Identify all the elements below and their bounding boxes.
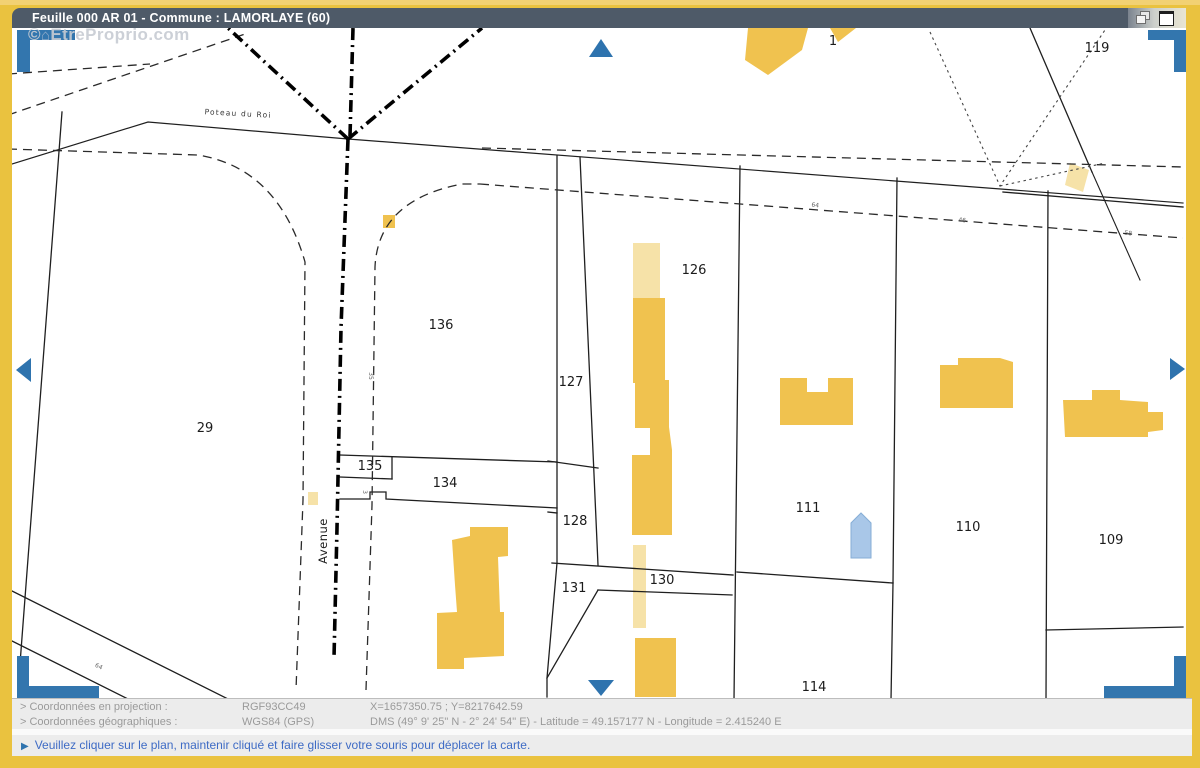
- parcel-label-109: 109: [1099, 533, 1124, 548]
- coordinates-statusbar: > Coordonnées en projection : RGF93CC49 …: [12, 698, 1192, 729]
- frame-right-strip: [1186, 8, 1192, 698]
- parcel-label-110: 110: [956, 520, 981, 535]
- parcel-row-top-line: [1003, 192, 1183, 207]
- pool-111: [851, 513, 871, 558]
- northeast-diagonal-tail: [1092, 172, 1140, 280]
- boundary-126-111: [734, 166, 740, 698]
- avenue-west-edge: [12, 149, 305, 690]
- geographic-system: WGS84 (GPS): [242, 715, 370, 729]
- building-134: [437, 527, 508, 669]
- boundary-128-131: [548, 512, 557, 513]
- building-parcel-1: [745, 28, 808, 75]
- parcel-label-127: 127: [559, 375, 584, 390]
- pan-up-arrow[interactable]: [589, 39, 613, 57]
- parcel-label-29: 29: [197, 421, 214, 436]
- map-corner-bracket-top-right-arm: [1174, 30, 1186, 72]
- parcel-29-west-boundary: [18, 112, 62, 690]
- instruction-arrow-icon: ▶: [21, 741, 29, 752]
- parcel-label-135: 135: [358, 459, 383, 474]
- parcel-label-1: 1: [829, 34, 837, 49]
- parcel-135-south-boundary: [340, 477, 392, 479]
- building-110: [940, 358, 1013, 408]
- boundary-110-109: [1046, 191, 1048, 698]
- parcel-label-128: 128: [563, 514, 588, 529]
- boundary-111-110: [891, 178, 897, 698]
- dotted-spur: [1000, 163, 1105, 186]
- map-corner-bracket-bottom-left: [17, 686, 99, 698]
- dotted-boundaries: [930, 30, 1105, 186]
- avenue-centerline: [334, 139, 348, 658]
- instruction-text: Veuillez cliquer sur le plan, maintenir …: [35, 738, 531, 752]
- measure-label-bottom-left: 64: [94, 662, 104, 672]
- pan-down-arrow[interactable]: [588, 680, 614, 696]
- parcel-label-136: 136: [429, 318, 454, 333]
- building-avenue-small: [308, 492, 318, 505]
- parcel-label-134: 134: [433, 476, 458, 491]
- frame-highlight: [0, 0, 1200, 5]
- map-window: Feuille 000 AR 01 - Commune : LAMORLAYE …: [12, 8, 1192, 756]
- boundary-arm-northeast: [348, 28, 482, 139]
- building-130: [635, 638, 676, 697]
- measure-label-46: 46: [958, 217, 967, 225]
- parcel-label-114: 114: [802, 680, 827, 695]
- building-130-light: [633, 545, 646, 628]
- parcel-119-west-boundary: [1030, 28, 1092, 172]
- instruction-bar: ▶Veuillez cliquer sur le plan, maintenir…: [12, 735, 1192, 756]
- map-viewport[interactable]: ©⌂EtreProprio.com: [12, 28, 1186, 698]
- parcel-label-130: 130: [650, 573, 675, 588]
- pan-left-arrow[interactable]: [16, 358, 31, 382]
- geographic-label: > Coordonnées géographiques :: [12, 715, 242, 729]
- building-111: [780, 378, 853, 425]
- dotted-v-boundary: [930, 30, 1105, 186]
- restore-window-icon[interactable]: [1136, 11, 1150, 24]
- northwest-dashed-diagonal: [12, 34, 245, 115]
- building-126-light: [633, 243, 660, 298]
- northwest-dashed-short: [12, 64, 150, 74]
- building-126: [632, 298, 672, 535]
- measure-label-avenue-1: 35: [367, 372, 374, 380]
- cadastral-map[interactable]: Poteau du Roi Avenue 1 119 126 136 127 2…: [12, 28, 1186, 698]
- window-titlebar: Feuille 000 AR 01 - Commune : LAMORLAYE …: [12, 8, 1192, 28]
- measure-label-avenue-2: 3: [361, 490, 368, 494]
- geographic-row: > Coordonnées géographiques : WGS84 (GPS…: [12, 715, 1192, 729]
- watermark: ©⌂EtreProprio.com: [28, 28, 190, 45]
- parcel-label-111: 111: [796, 501, 821, 516]
- projection-system: RGF93CC49: [242, 700, 370, 714]
- street-label-avenue: Avenue: [316, 518, 330, 564]
- parcel-label-131: 131: [562, 581, 587, 596]
- boundary-arm-northwest: [228, 28, 348, 139]
- map-corner-bracket-bottom-left-arm: [17, 656, 29, 698]
- parcel-109-south-boundary: [1046, 627, 1183, 630]
- building-119-light: [1065, 163, 1089, 192]
- central-boundary: [547, 156, 557, 697]
- titlebar-controls: [1128, 8, 1186, 28]
- building-136-small: [383, 215, 395, 228]
- measure-label-58: 58: [1124, 230, 1133, 238]
- map-corner-bracket-bottom-right-arm: [1174, 656, 1186, 698]
- house-icon: ⌂: [41, 28, 50, 44]
- commune-boundary: [228, 28, 482, 658]
- projection-label: > Coordonnées en projection :: [12, 700, 242, 714]
- street-label-poteau-du-roi: Poteau du Roi: [204, 107, 272, 120]
- boundary-127-126: [580, 157, 598, 565]
- measure-label-64: 64: [811, 202, 820, 210]
- southwest-diagonal-1: [12, 591, 230, 698]
- parcel-130-southwest-boundary: [547, 590, 598, 678]
- restore-front-square: [1136, 15, 1146, 24]
- road-south-edge-dashed: [480, 184, 1183, 238]
- pan-right-arrow[interactable]: [1170, 358, 1185, 380]
- projection-row: > Coordonnées en projection : RGF93CC49 …: [12, 700, 1192, 714]
- projection-values: X=1657350.75 ; Y=8217642.59: [370, 700, 523, 714]
- geographic-values: DMS (49° 9' 25" N - 2° 24' 54" E) - Lati…: [370, 715, 782, 729]
- parcel-114-north-boundary: [737, 572, 893, 583]
- maximize-window-icon[interactable]: [1159, 11, 1174, 26]
- boundary-arm-north: [350, 28, 353, 136]
- window-title: Feuille 000 AR 01 - Commune : LAMORLAYE …: [32, 8, 330, 28]
- parcel-label-119: 119: [1085, 41, 1110, 56]
- parcel-130-south-boundary: [598, 590, 732, 595]
- parcel-label-126: 126: [682, 263, 707, 278]
- building-109: [1063, 390, 1163, 437]
